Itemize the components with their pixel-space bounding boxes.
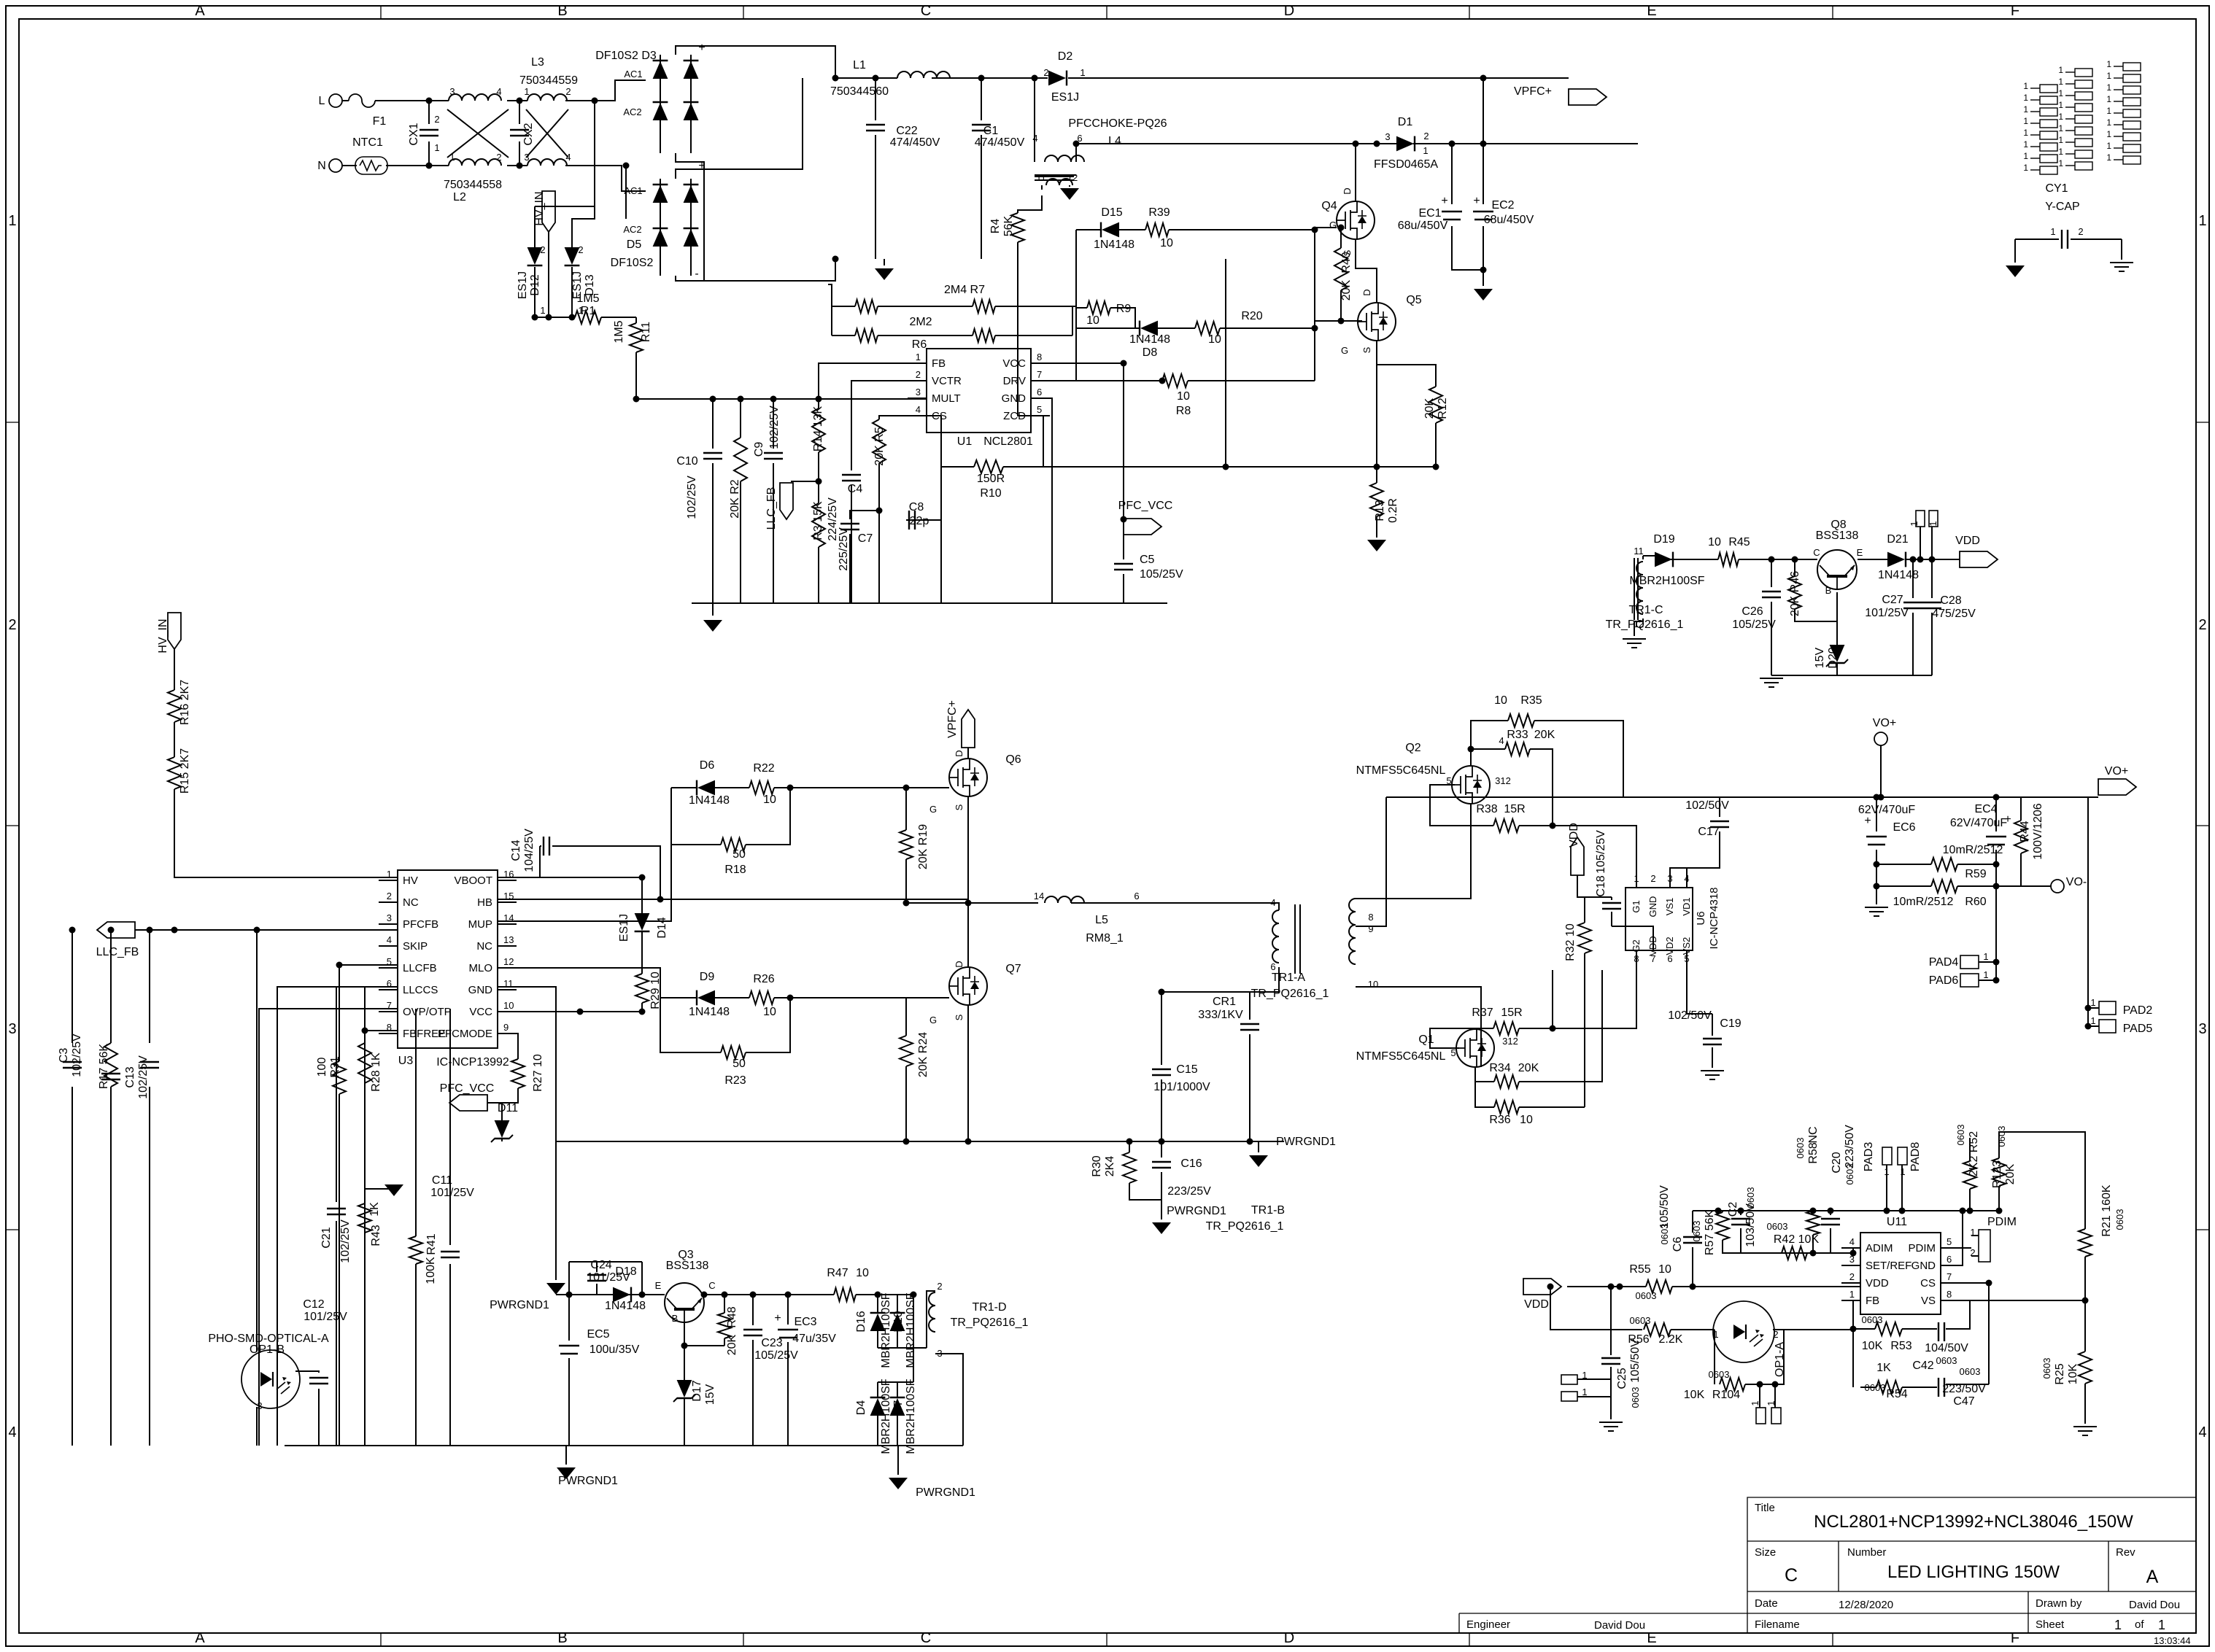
component-label: 474/450V: [975, 136, 1025, 149]
zone-column-label: B: [557, 3, 567, 19]
pin-name: DRV: [1003, 375, 1026, 387]
plot-time: 13:03:44: [2154, 1635, 2191, 1646]
ic-ref: U6: [1695, 911, 1707, 925]
component-label: 12: [1634, 618, 1644, 629]
component-label: 11: [1036, 172, 1046, 183]
ic-u6: G11GND2VS13VD14G28VDD7VD26VS25U6IC-NCP43…: [1626, 873, 1720, 964]
component-label: 102/25V: [768, 406, 781, 449]
pin-name: VD1: [1681, 897, 1692, 915]
pad-pin-number: 1: [2023, 93, 2028, 103]
pin-number: 10: [503, 1000, 514, 1011]
component-label: 0603: [1636, 1290, 1657, 1301]
component-label: D6: [700, 759, 715, 772]
component-label: 4: [1032, 133, 1037, 144]
component-label: 10mR/2512: [1893, 896, 1954, 908]
component-label: 1: [1766, 1400, 1777, 1405]
component-label: 2: [1043, 67, 1048, 78]
mounting-pad: [2075, 150, 2092, 158]
component-label: HV_IN: [157, 618, 169, 653]
component-label: R30: [1091, 1155, 1103, 1176]
component-label: L3: [531, 56, 544, 69]
component-label: D7: [892, 1400, 905, 1416]
component-label: 101/1000V: [1153, 1081, 1210, 1093]
component-label: 2M4 R7: [944, 284, 985, 296]
pin-name: CS: [1920, 1277, 1936, 1290]
ic-u1: FB1VCTR2MULT3CS4VCC8DRV7GND6ZCD5: [908, 349, 1050, 433]
component-label: +: [1864, 815, 1871, 827]
component-label: S: [954, 1014, 965, 1020]
component-label: 2: [578, 244, 583, 255]
component-label: C4: [848, 483, 863, 495]
pin-number: 6: [387, 978, 392, 989]
schematic-symbols: [63, 61, 2136, 1489]
component-label: 1: [1750, 1400, 1760, 1405]
zone-column-label: F: [2011, 3, 2019, 19]
zone-column-label: A: [195, 1630, 205, 1646]
mounting-pad: [2040, 108, 2057, 116]
component-label: 22p: [910, 515, 929, 527]
pin-number: 2: [916, 369, 921, 380]
component-label: F1: [373, 115, 387, 128]
component-label: 225/25V: [838, 527, 850, 571]
component-label: 2.2K: [1659, 1333, 1683, 1346]
component-label: C: [1813, 547, 1820, 558]
component-label: 750344558: [444, 179, 502, 191]
component-label: LLC_FB: [96, 946, 139, 958]
component-label: 105/50V: [1629, 1339, 1642, 1383]
component-label: C8: [909, 501, 924, 513]
mounting-pad: [2123, 144, 2141, 152]
component-label: LLC_FB: [765, 487, 778, 530]
pin-name: NC: [476, 940, 492, 953]
component-label: D4: [855, 1400, 867, 1416]
component-label: DF10S2: [611, 257, 654, 269]
component-label: C13: [124, 1066, 136, 1087]
component-label: 102/25V: [71, 1034, 83, 1077]
component-label: 1: [1884, 1166, 1889, 1177]
component-label: 6: [1077, 133, 1082, 144]
component-label: TR_PQ2616_1: [951, 1316, 1029, 1329]
component-label: C14: [510, 839, 522, 861]
component-label: 4: [496, 86, 501, 97]
pad-pin-number: 1: [2106, 152, 2111, 163]
component-label: C11: [432, 1174, 452, 1187]
component-label: 6: [1270, 961, 1275, 972]
component-label: N: [317, 160, 326, 172]
component-label: 1: [1928, 521, 1938, 526]
pin-number: 4: [387, 934, 392, 945]
component-label: U1: [957, 435, 973, 448]
component-label: 1K: [1876, 1362, 1891, 1374]
pin-name: ADIM: [1866, 1242, 1893, 1254]
mounting-pad: [2075, 139, 2092, 147]
component-label: 150R: [977, 473, 1005, 485]
mounting-pad: [2123, 133, 2141, 141]
component-label: R32 10: [1564, 923, 1577, 961]
pin-name: VCC: [1002, 357, 1026, 370]
pin-number: 4: [1849, 1236, 1855, 1247]
component-label: 102/50V: [1685, 799, 1729, 812]
component-label: +: [1441, 195, 1447, 207]
component-label: R45: [1728, 536, 1750, 548]
pin-name: G2: [1631, 939, 1642, 952]
pin-name: VS1: [1664, 898, 1675, 916]
component-label: AC2: [623, 224, 641, 235]
pin-name: G1: [1631, 900, 1642, 912]
pin-name: GND: [1911, 1260, 1936, 1272]
component-label: +: [2004, 813, 2011, 826]
component-label: C18: [1595, 875, 1607, 896]
component-label: MBR2H100SF: [905, 1292, 917, 1368]
component-label: VPFC+: [946, 700, 959, 738]
component-label: 2: [1773, 1329, 1778, 1340]
component-label: 1: [524, 86, 529, 97]
component-label: 5: [1450, 1047, 1456, 1058]
pin-number: 6: [1037, 387, 1042, 398]
component-label: MBR2H100SF: [880, 1378, 892, 1454]
component-label: 105/25V: [1140, 568, 1183, 581]
component-label: R4: [989, 219, 1002, 234]
component-label: 14: [1034, 891, 1044, 901]
title-block: Title NCL2801+NCP13992+NCL38046_150W Siz…: [1459, 1497, 2196, 1646]
component-label: EC3: [794, 1316, 816, 1328]
pin-number: 8: [1037, 352, 1042, 362]
component-label: R33: [1507, 729, 1528, 741]
component-label: B: [672, 1313, 679, 1324]
component-label: +: [698, 160, 705, 172]
pin-name: GND: [1647, 896, 1658, 918]
component-label: ES1J: [618, 914, 630, 942]
component-label: 3: [257, 1400, 262, 1411]
pad-pin-number: 1: [2023, 81, 2028, 91]
component-label: +: [774, 1312, 781, 1325]
component-label: E: [655, 1280, 662, 1291]
component-label: 15R: [1501, 1007, 1522, 1019]
component-label: EC6: [1893, 821, 1915, 834]
component-label: 0603: [2114, 1209, 2125, 1230]
component-label: 15R: [1504, 803, 1525, 815]
size-value: C: [1785, 1565, 1798, 1586]
component-label: D2: [1058, 50, 1073, 63]
component-label: CY1: [2045, 182, 2068, 195]
component-label: 1: [2090, 1015, 2095, 1026]
component-label: 0603: [1630, 1315, 1651, 1326]
component-label: G: [1329, 220, 1337, 230]
component-label: 102/25V: [137, 1055, 150, 1099]
component-label: 8: [1368, 912, 1373, 923]
engineer-label: Engineer: [1466, 1618, 1510, 1631]
pad-pin-number: 1: [2106, 106, 2111, 116]
schematic-title: NCL2801+NCP13992+NCL38046_150W: [1814, 1512, 2133, 1532]
component-label: 10: [1177, 390, 1190, 403]
component-label: D: [1342, 187, 1353, 194]
pin-number: 2: [1650, 873, 1655, 884]
pin-number: 5: [1947, 1236, 1952, 1247]
component-label: 102/25V: [339, 1219, 352, 1263]
component-label: PAD2: [2123, 1004, 2153, 1017]
component-label: -: [695, 268, 698, 280]
pin-number: 4: [916, 404, 921, 415]
component-label: 104/25V: [523, 829, 536, 872]
component-label: C24: [590, 1259, 611, 1271]
pad-pin-number: 1: [2106, 59, 2111, 69]
component-label: 2: [2078, 226, 2083, 237]
component-label: R36: [1489, 1114, 1510, 1126]
schematic-wires: [72, 46, 2122, 1475]
component-label: R1: [581, 305, 596, 317]
mounting-pad: [2040, 120, 2057, 128]
pin-number: 2: [387, 891, 392, 901]
component-label: 1: [434, 142, 439, 153]
component-label: D19: [1653, 533, 1674, 546]
zone-row-label: 4: [8, 1424, 16, 1440]
component-label: BSS138: [666, 1260, 709, 1272]
pad-pin-number: 1: [2106, 82, 2111, 93]
pad-pin-number: 1: [2058, 123, 2063, 133]
component-label: 1: [1582, 1370, 1587, 1381]
pad-pin-number: 1: [2058, 147, 2063, 157]
component-label: 475/25V: [1932, 608, 1976, 620]
component-label: PAD5: [2123, 1023, 2153, 1035]
component-label: 1K: [368, 1202, 381, 1217]
component-label: Q1: [1418, 1034, 1434, 1046]
component-label: 56K: [1002, 215, 1015, 236]
component-label: 1N4148: [689, 1006, 730, 1018]
pin-name: VDD: [1866, 1277, 1889, 1290]
component-label: 5: [1446, 775, 1451, 786]
number-value: LED LIGHTING 150W: [1887, 1562, 2060, 1582]
component-label: C16: [1180, 1157, 1202, 1170]
component-label: 474/450V: [890, 136, 940, 149]
component-label: 10: [1708, 536, 1721, 548]
component-label: 68u/450V: [1484, 214, 1534, 226]
component-label: VPFC+: [1514, 85, 1552, 98]
zone-column-label: D: [1284, 1630, 1294, 1646]
component-label: 0603: [2041, 1358, 2052, 1379]
component-label: R55: [1629, 1263, 1650, 1276]
component-label: PAD8: [1909, 1142, 1922, 1172]
component-label: C3: [58, 1048, 70, 1063]
mounting-pad: [2040, 131, 2057, 139]
component-label: FFSD0465A: [1374, 158, 1438, 171]
component-label: 62V/470uF: [1950, 817, 2008, 829]
pin-number: 3: [916, 387, 921, 398]
component-label: 100u/35V: [589, 1343, 640, 1356]
pin-name: FB: [1866, 1295, 1879, 1307]
sheet-num: 1: [2114, 1618, 2122, 1632]
pad-pin-number: 1: [2106, 94, 2111, 104]
component-label: 100: [316, 1058, 328, 1077]
component-label: C28: [1940, 594, 1961, 607]
component-label: C26: [1742, 605, 1763, 618]
component-label: Q2: [1405, 742, 1420, 754]
filename-label: Filename: [1755, 1618, 1800, 1631]
component-label: TR1-D: [972, 1301, 1006, 1314]
component-label: 0603: [1691, 1221, 1702, 1242]
pad-pin-number: 1: [2058, 112, 2063, 122]
pin-name: VS2: [1681, 937, 1692, 955]
pin-name: VBOOT: [454, 875, 492, 887]
component-label: C19: [1720, 1017, 1741, 1030]
component-label: R123: [1991, 1160, 2003, 1188]
pin-number: 15: [503, 891, 514, 901]
component-label: 20K: [726, 1334, 738, 1355]
component-label: 2: [565, 86, 571, 97]
component-label: R16 2K7: [179, 680, 191, 725]
component-label: R27 10: [532, 1054, 544, 1092]
zone-column-label: C: [921, 3, 931, 19]
mounting-pad: [2123, 63, 2141, 71]
component-label: 1: [1423, 145, 1428, 156]
sheet-of-label: of: [2135, 1618, 2144, 1631]
component-label: D: [1361, 289, 1372, 295]
component-label: 2: [1970, 1247, 1975, 1258]
component-label: 0603: [1659, 1224, 1670, 1245]
zone-column-label: E: [1647, 1630, 1656, 1646]
component-label: TR1-A: [1272, 972, 1306, 984]
pin-name: NC: [403, 896, 419, 909]
zone-row-label: 2: [8, 617, 16, 633]
pin-name: VCC: [469, 1006, 492, 1018]
component-label: 1: [1582, 1387, 1587, 1397]
component-label: C17: [1698, 826, 1719, 838]
mounting-pad: [2075, 115, 2092, 123]
component-label: R53: [1890, 1340, 1911, 1352]
component-label: 47u/35V: [792, 1333, 836, 1345]
title-label: Title: [1755, 1502, 1775, 1514]
mounting-pad: [2075, 69, 2092, 77]
component-label: NC: [1807, 1126, 1820, 1143]
component-label: PAD4: [1929, 956, 1959, 969]
component-label: S: [954, 804, 965, 810]
component-label: R38: [1476, 803, 1497, 815]
component-label: R60: [1965, 896, 1986, 908]
pin-number: 3: [1667, 873, 1672, 884]
pad-pin-number: 1: [2058, 88, 2063, 98]
component-label: 4: [1270, 897, 1275, 908]
pin-number: 4: [1684, 873, 1689, 884]
schematic-ics: FB1VCTR2MULT3CS4VCC8DRV7GND6ZCD5HV1NC2PF…: [379, 349, 1960, 1314]
component-label: 1: [2050, 226, 2055, 237]
pin-number: 14: [503, 912, 514, 923]
component-label: C25: [1616, 1368, 1628, 1389]
component-label: Q4: [1321, 200, 1337, 212]
pad-pin-number: 1: [2023, 116, 2028, 126]
component-label: 2K2 R52: [1968, 1131, 1980, 1176]
component-label: D9: [700, 971, 715, 983]
component-label: PFC_VCC: [1118, 500, 1173, 512]
mounting-pad: [2040, 166, 2057, 174]
component-label: PFC_VCC: [440, 1082, 495, 1095]
component-label: PWRGND1: [490, 1299, 549, 1311]
pad-pin-number: 1: [2106, 141, 2111, 151]
component-label: D: [954, 961, 965, 967]
component-label: 750344559: [519, 74, 578, 87]
pad-pin-number: 1: [2023, 139, 2028, 150]
mounting-pad: [2040, 96, 2057, 104]
component-label: NTMFS5C645NL: [1356, 764, 1446, 777]
component-label: VDD: [1568, 823, 1580, 848]
component-label: C22: [896, 125, 917, 137]
component-label: DF10S2 D3: [595, 50, 657, 62]
pin-name: VCTR: [932, 375, 962, 387]
component-label: R31: [329, 1056, 341, 1077]
component-label: 100V/1206: [2032, 803, 2044, 860]
component-label: 68u/450V: [1398, 220, 1448, 232]
pin-number: 5: [387, 956, 392, 967]
pin-name: MULT: [932, 392, 961, 405]
pin-number: 7: [387, 1000, 392, 1011]
number-label: Number: [1847, 1546, 1886, 1559]
component-label: D11: [498, 1102, 518, 1114]
component-label: R44: [2019, 821, 2031, 842]
component-label: 1M5: [576, 292, 599, 305]
pad-pin-number: 1: [2023, 163, 2028, 173]
component-label: D10: [892, 1311, 905, 1332]
component-label: 3: [524, 152, 529, 163]
component-label: 2: [434, 114, 439, 125]
pad-pin-number: 1: [2023, 104, 2028, 115]
pin-name: GND: [468, 984, 493, 996]
pad-pin-number: 1: [2058, 100, 2063, 110]
component-label: 10: [856, 1267, 869, 1279]
component-label: C42: [1912, 1360, 1933, 1372]
component-label: R41: [425, 1233, 438, 1254]
component-label: R37: [1472, 1007, 1493, 1019]
component-label: 1: [2090, 997, 2095, 1008]
component-label: TR_PQ2616_1: [1206, 1220, 1284, 1233]
component-label: R59: [1965, 868, 1986, 880]
component-label: 10: [1368, 979, 1378, 990]
component-label: R34: [1489, 1062, 1510, 1074]
component-label: R25: [2054, 1363, 2066, 1384]
component-label: 1N4148: [689, 794, 730, 807]
date-value: 12/28/2020: [1839, 1599, 1893, 1611]
component-label: D1: [1398, 116, 1413, 128]
pin-name: PFCFB: [403, 918, 438, 931]
component-label: C23: [761, 1337, 782, 1349]
component-label: D: [954, 750, 965, 756]
pin-name: OVP/OTP: [403, 1006, 452, 1018]
pin-number: 13: [503, 934, 514, 945]
mounting-pad: [2075, 92, 2092, 100]
component-label: EC4: [1974, 803, 1997, 815]
component-label: 0603: [1865, 1382, 1886, 1393]
component-label: 10: [1086, 314, 1099, 327]
component-label: L4: [1108, 135, 1121, 147]
component-label: 50: [732, 848, 746, 861]
component-label: OP1-B: [250, 1343, 285, 1356]
pad-pin-number: 1: [2023, 128, 2028, 138]
mounting-pad: [2123, 86, 2141, 94]
mounting-pad: [2040, 155, 2057, 163]
pad-pin-number: 1: [2058, 77, 2063, 87]
component-label: D14: [656, 917, 668, 938]
pin-name: FB: [932, 357, 946, 370]
component-label: 20K R19: [917, 824, 929, 869]
component-label: 312: [1495, 775, 1511, 786]
component-label: 3: [937, 1348, 942, 1359]
component-label: R10: [980, 487, 1001, 500]
pin-number: 8: [1634, 953, 1639, 964]
component-label: G: [1341, 345, 1348, 356]
component-label: R47: [827, 1267, 848, 1279]
component-label: R26: [753, 973, 774, 985]
component-label: 105/25V: [1595, 830, 1607, 874]
component-label: 20K R5: [873, 427, 886, 465]
component-label: 3: [1385, 131, 1390, 142]
component-label: MBR2H100SF: [1629, 575, 1704, 587]
